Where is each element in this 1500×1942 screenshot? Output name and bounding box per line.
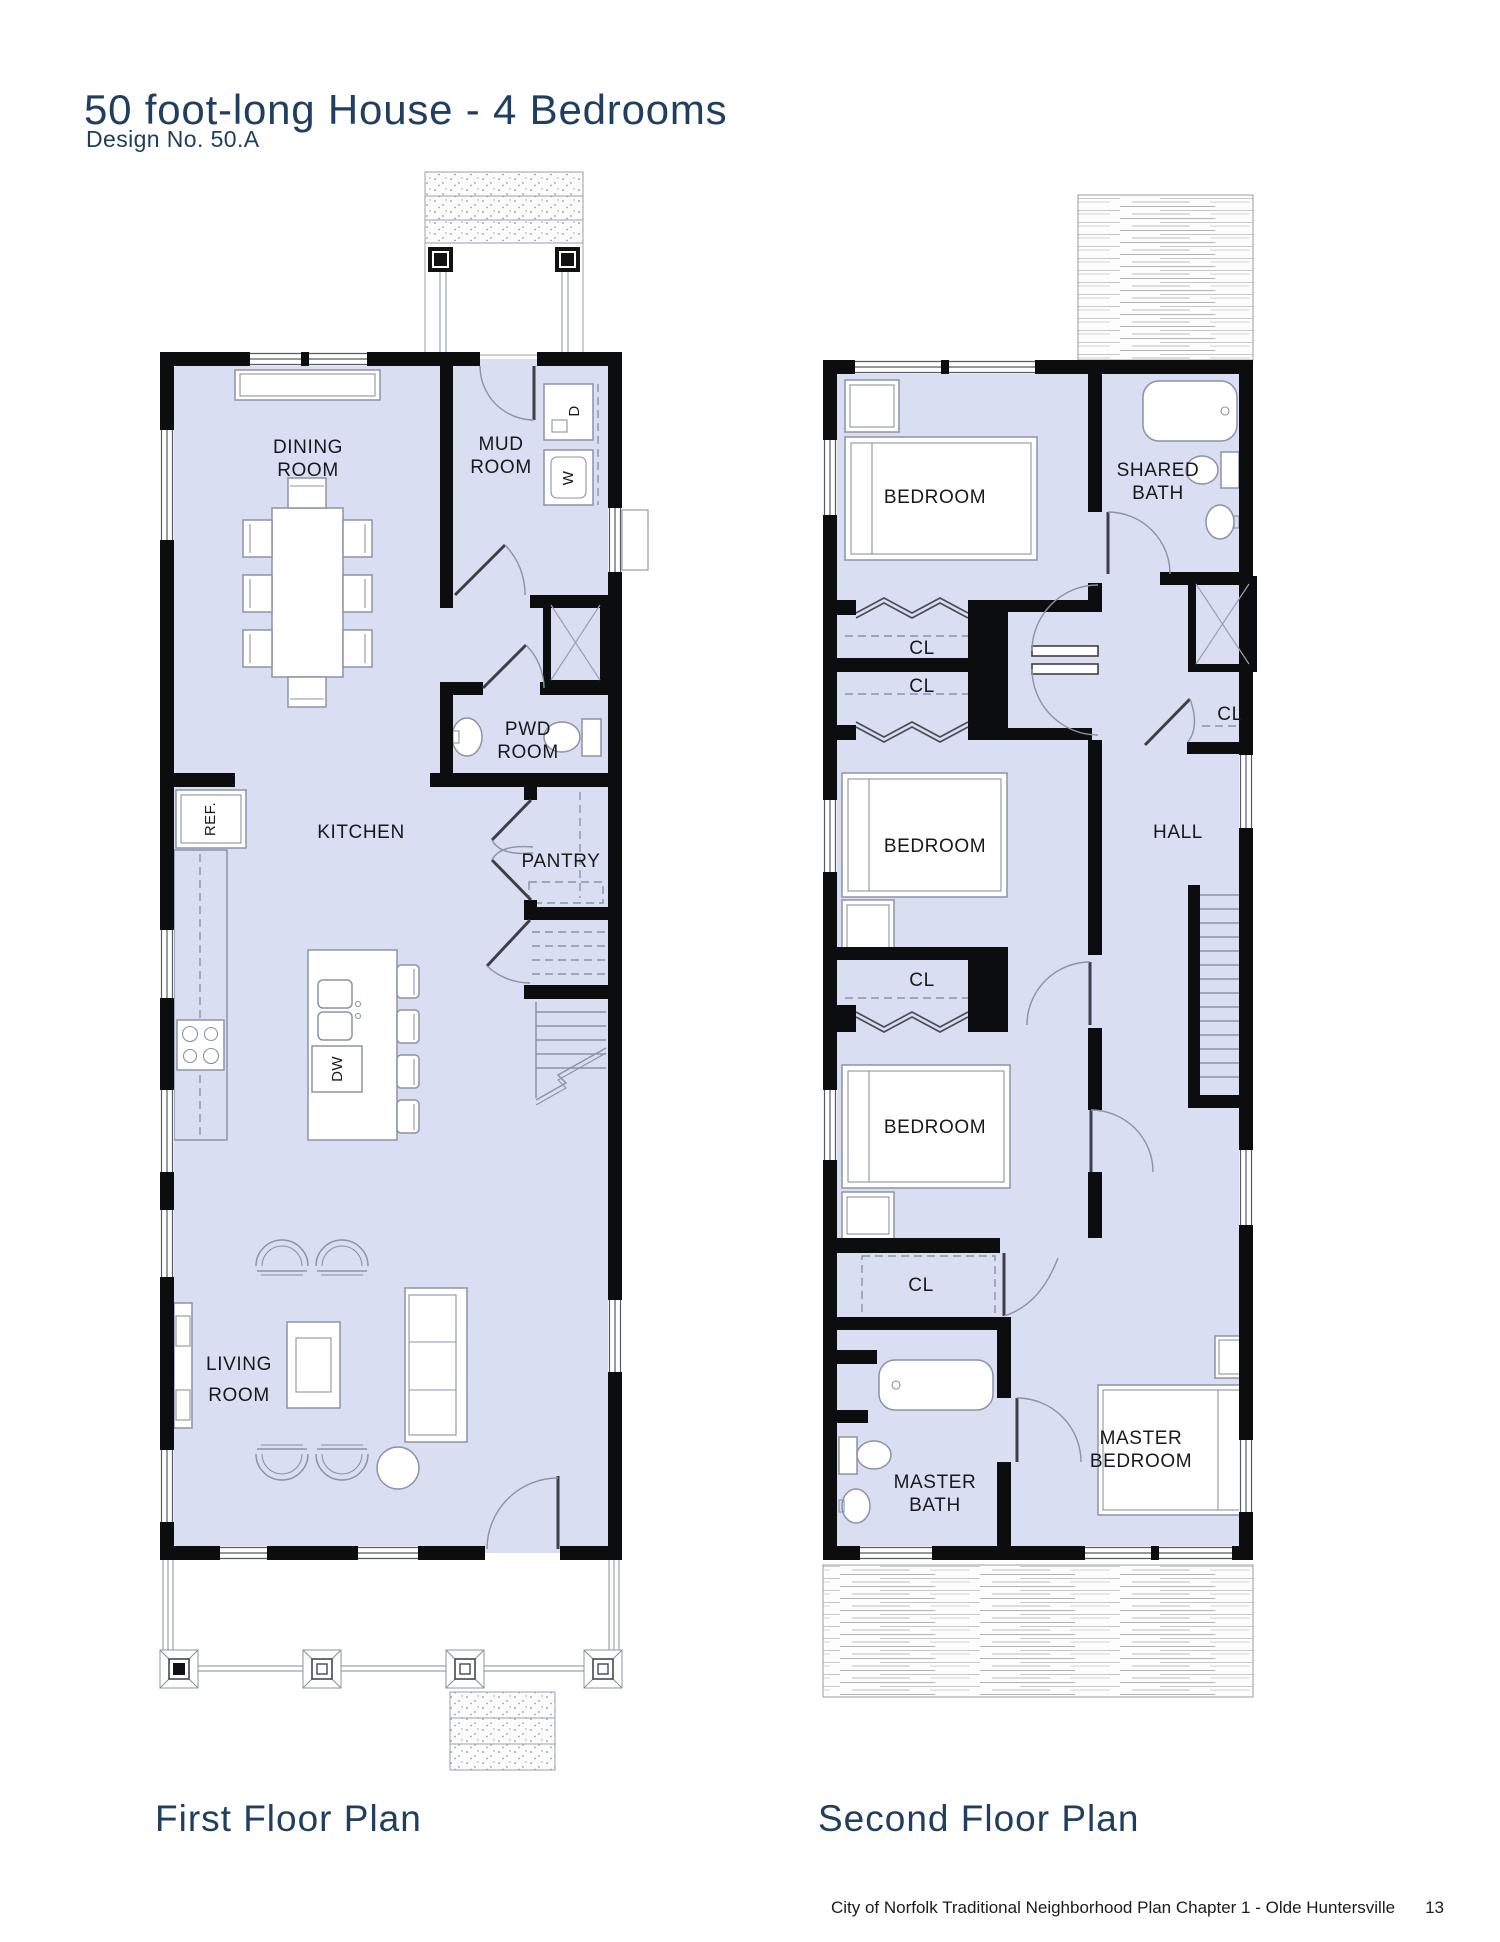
nightstand <box>842 1192 894 1239</box>
window <box>160 1450 174 1522</box>
dining-chair <box>243 520 272 557</box>
closet-label: CL <box>909 970 935 991</box>
svg-text:BEDROOM: BEDROOM <box>1090 1451 1192 1472</box>
svg-text:BATH: BATH <box>1132 483 1184 504</box>
stoop-post <box>555 247 580 272</box>
island-sink <box>318 1012 352 1040</box>
bed <box>1098 1385 1245 1515</box>
window <box>823 800 837 872</box>
porch-steps <box>450 1692 555 1770</box>
window <box>860 1546 932 1560</box>
side-door <box>608 508 648 572</box>
closet-label: CL <box>909 676 935 697</box>
hall-label: HALL <box>1153 822 1203 843</box>
bed <box>842 773 1007 897</box>
fridge-label: REF. <box>202 802 219 836</box>
window <box>160 1090 174 1172</box>
powder-room-label: PWD <box>505 719 551 740</box>
porch-post <box>446 1650 484 1688</box>
dining-chair <box>343 630 372 667</box>
rear-stoop <box>425 172 583 355</box>
second-floor-caption: Second Floor Plan <box>818 1798 1139 1840</box>
dining-chair <box>243 630 272 667</box>
master-bedroom-label: MASTER <box>1100 1428 1183 1449</box>
footer-text: City of Norfolk Traditional Neighborhood… <box>831 1898 1395 1918</box>
sink <box>452 718 482 756</box>
window <box>1239 1150 1253 1225</box>
document-page: 50 foot-long House - 4 Bedrooms Design N… <box>0 0 1500 1942</box>
dining-chair <box>343 575 372 612</box>
bedroom-label: BEDROOM <box>884 836 986 857</box>
island-sink <box>318 980 352 1008</box>
window <box>1239 755 1253 828</box>
nightstand <box>845 380 899 432</box>
window <box>608 1300 622 1372</box>
window <box>1085 1546 1232 1560</box>
dining-chair <box>288 677 326 707</box>
first-floor-plan: DINING ROOM MUD ROOM PWD ROOM KITCHEN PA… <box>160 172 648 1770</box>
nightstand <box>842 900 894 955</box>
window <box>160 1210 174 1277</box>
stove <box>177 1020 224 1070</box>
shared-bath-label: SHARED <box>1117 460 1200 481</box>
sink <box>842 1489 870 1523</box>
closet-label: CL <box>909 638 935 659</box>
dryer-label: D <box>566 405 583 416</box>
window <box>855 360 1035 374</box>
window <box>823 440 837 515</box>
porch-post <box>160 1650 198 1688</box>
coffee-table <box>287 1322 340 1408</box>
toilet-tank <box>839 1437 857 1474</box>
toilet-tank <box>582 719 601 756</box>
bedroom-label: BEDROOM <box>884 1117 986 1138</box>
living-room-label: LIVING <box>206 1354 272 1375</box>
page-footer: City of Norfolk Traditional Neighborhood… <box>831 1898 1444 1918</box>
window <box>358 1546 418 1560</box>
toilet-tank <box>1221 452 1239 488</box>
dining-chair <box>343 520 372 557</box>
floor-plans-drawing: DINING ROOM MUD ROOM PWD ROOM KITCHEN PA… <box>0 0 1500 1942</box>
window <box>1239 1440 1253 1512</box>
dining-chair <box>243 575 272 612</box>
dining-table <box>272 508 343 677</box>
window <box>220 1546 267 1560</box>
closet-label: CL <box>908 1275 934 1296</box>
sofa <box>405 1288 467 1442</box>
pantry-label: PANTRY <box>522 851 601 872</box>
window <box>160 930 174 998</box>
dishwasher-label: DW <box>329 1056 346 1082</box>
bathtub <box>879 1360 993 1410</box>
dining-room-label: DINING <box>273 437 343 458</box>
bedroom-label: BEDROOM <box>884 487 986 508</box>
svg-text:ROOM: ROOM <box>497 742 559 763</box>
svg-text:BATH: BATH <box>909 1495 961 1516</box>
porch-post <box>303 1650 341 1688</box>
svg-text:ROOM: ROOM <box>208 1385 270 1406</box>
window <box>823 1090 837 1160</box>
first-floor-caption: First Floor Plan <box>155 1798 422 1840</box>
sink <box>1206 505 1234 539</box>
window <box>160 430 174 540</box>
side-table <box>377 1447 419 1489</box>
svg-text:ROOM: ROOM <box>470 457 532 478</box>
dining-chair <box>288 478 326 508</box>
porch-post <box>584 1650 622 1688</box>
closet-label: CL <box>1217 704 1243 725</box>
master-bath-label: MASTER <box>894 1472 977 1493</box>
bathtub <box>1143 381 1237 441</box>
porch-roof <box>823 1565 1253 1697</box>
tv-console <box>174 1303 192 1428</box>
stoop-post <box>428 247 453 272</box>
kitchen-label: KITCHEN <box>317 822 405 843</box>
mud-room-label: MUD <box>478 434 523 455</box>
kitchen-island <box>308 950 397 1140</box>
page-number: 13 <box>1425 1898 1444 1918</box>
toilet <box>857 1441 891 1469</box>
svg-text:ROOM: ROOM <box>277 460 339 481</box>
second-floor-plan: BEDROOM BEDROOM BEDROOM SHARED BATH HALL… <box>823 195 1253 1697</box>
front-porch <box>160 1560 622 1770</box>
washer-label: W <box>560 470 577 485</box>
rear-roof <box>1078 195 1253 360</box>
